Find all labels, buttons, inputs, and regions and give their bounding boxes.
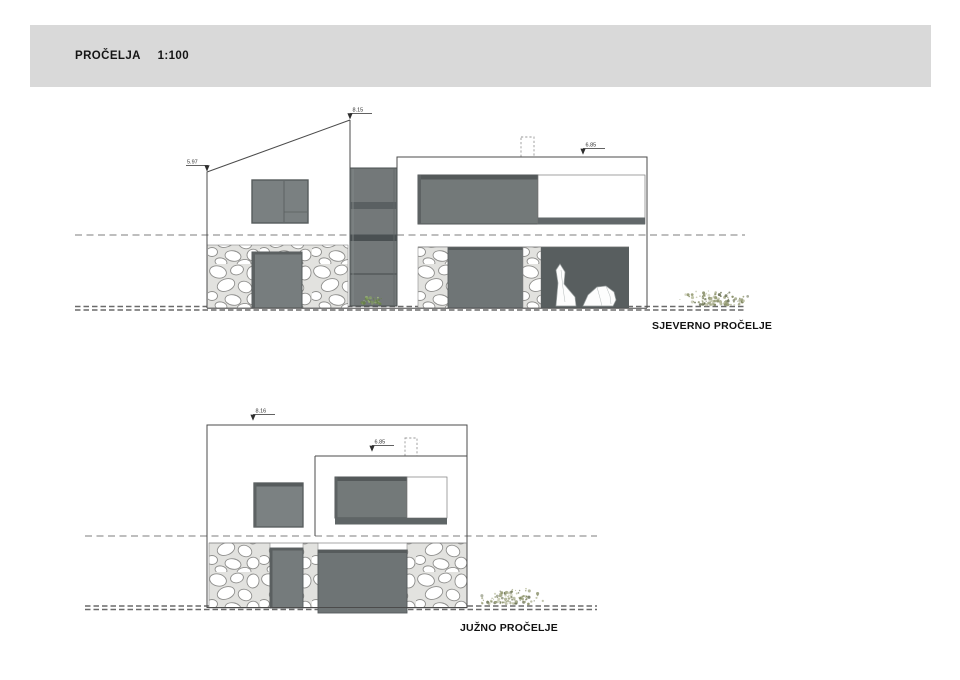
svg-text:5.97: 5.97 [187,160,198,166]
south-stone-left [209,543,270,608]
south-left-window [254,483,303,527]
north-loggia-parapet [538,218,645,225]
north-stone-pier-left [418,247,448,308]
south-garage-door [318,550,407,613]
svg-text:8.15: 8.15 [353,108,364,114]
north-entry-door [252,252,302,308]
glazing-slab-band [350,202,397,209]
south-stone-right [407,543,467,608]
south-elevation-label: JUŽNO PROČELJE [460,621,558,634]
svg-text:8.16: 8.16 [256,409,267,415]
south-main-window [335,477,407,518]
north-stair-glazing-strip [350,168,397,306]
shrub-south [480,588,544,605]
spot-height-ridge: 8.15 [347,108,372,120]
south-stone-mid [303,543,318,608]
spot-height-ridge-south: 8.16 [250,409,275,421]
north-elevation: 5.97 8.15 6.85 SJEVERNO PROČELJE [75,108,772,333]
glazing-floor-band [350,235,397,242]
south-entry-door [270,548,303,608]
spot-height-eave: 5.97 [186,160,210,172]
elevations-canvas: 5.97 8.15 6.85 SJEVERNO PROČELJE [0,0,960,680]
svg-text:6.85: 6.85 [375,440,386,446]
north-upper-window [252,180,308,223]
north-garage-door [448,247,523,308]
north-chimney-outline [521,137,534,157]
north-right-upper-window [418,175,538,224]
south-elevation: 8.16 6.85 JUŽNO PROČELJE [85,409,597,635]
svg-text:6.85: 6.85 [586,143,597,149]
spot-height-parapet-north: 6.85 [580,143,605,155]
north-terrace-opening [541,247,629,308]
shrub-north [679,290,749,306]
north-stone-pier-right [523,247,541,308]
north-elevation-label: SJEVERNO PROČELJE [652,319,772,332]
north-loggia [538,175,645,225]
south-loggia-parapet [335,518,447,525]
drawing-sheet: PROČELJA 1:100 [0,0,960,680]
